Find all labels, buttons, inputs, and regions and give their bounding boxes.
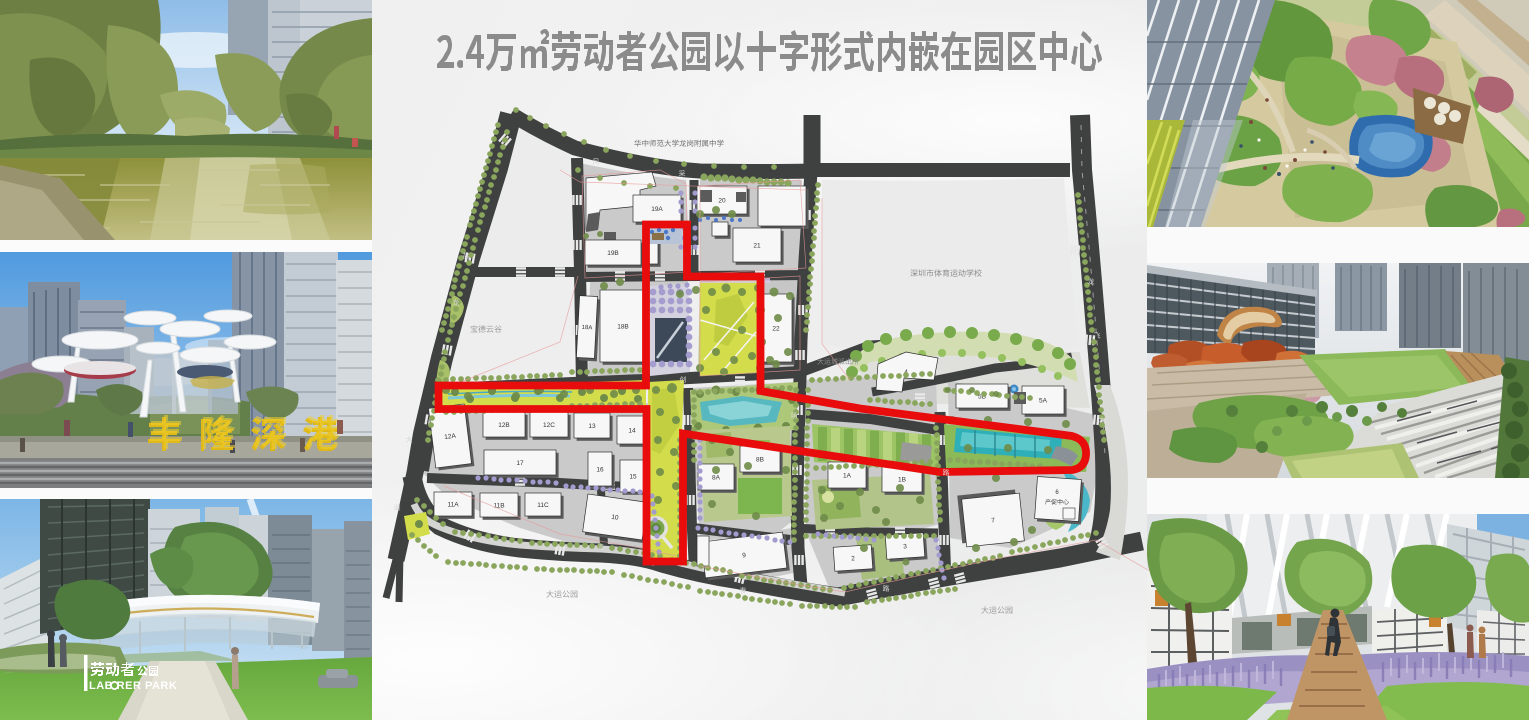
svg-text:12A: 12A (444, 433, 457, 441)
svg-text:15: 15 (629, 473, 637, 480)
svg-text:14: 14 (628, 427, 636, 434)
svg-text:21: 21 (753, 242, 761, 249)
svg-text:16: 16 (596, 466, 604, 473)
svg-text:1A: 1A (843, 472, 852, 479)
svg-text:18A: 18A (581, 325, 592, 332)
svg-text:20: 20 (718, 197, 726, 204)
svg-text:10: 10 (611, 514, 620, 522)
svg-text:1B: 1B (898, 476, 906, 483)
svg-text:19A: 19A (651, 206, 663, 213)
svg-text:12B: 12B (498, 422, 510, 429)
svg-text:LAB RER PARK: LAB RER PARK (89, 680, 177, 692)
svg-text:11B: 11B (493, 502, 504, 509)
svg-text:5A: 5A (1039, 397, 1048, 404)
svg-text:19B: 19B (607, 250, 619, 257)
svg-text:11A: 11A (447, 501, 459, 508)
svg-text:8B: 8B (756, 456, 764, 463)
svg-text:17: 17 (516, 460, 524, 467)
svg-text:18B: 18B (617, 323, 629, 330)
svg-text:11C: 11C (537, 502, 549, 509)
svg-text:22: 22 (772, 325, 780, 332)
svg-text:13: 13 (588, 423, 596, 430)
svg-text:12C: 12C (543, 422, 555, 429)
svg-text:8A: 8A (712, 474, 721, 481)
